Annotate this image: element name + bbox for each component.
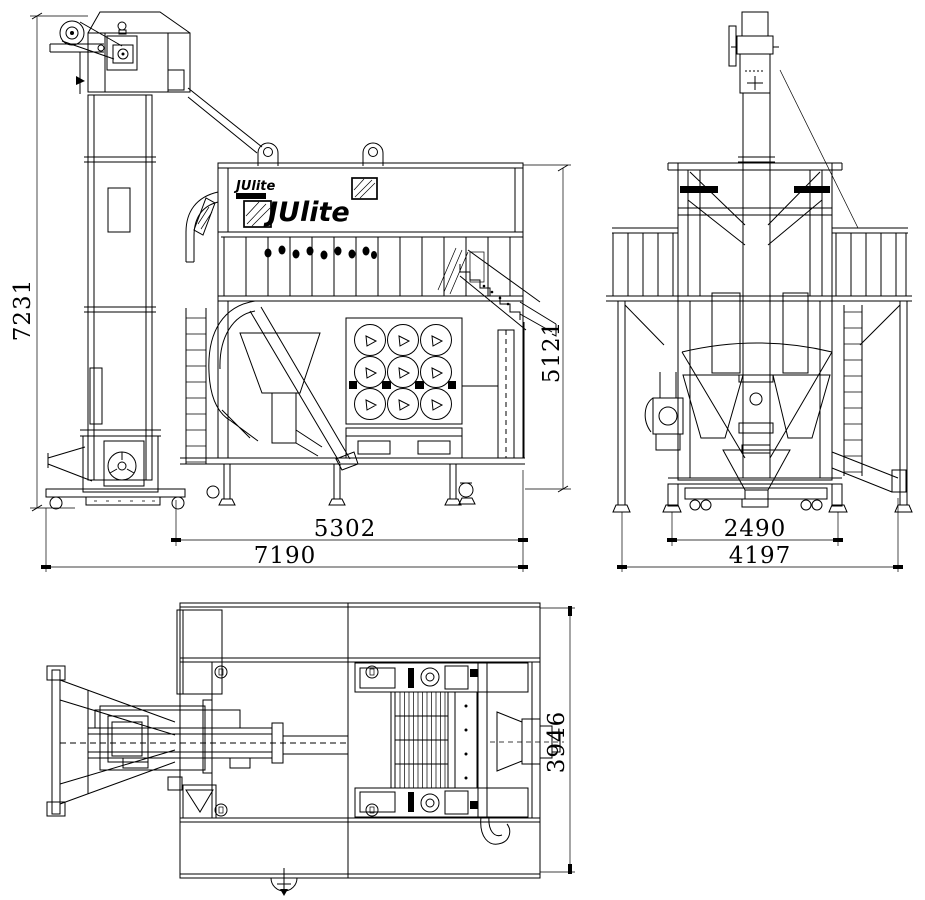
dimension-front-overall-height: 7231 — [10, 13, 88, 511]
machine-internals-front — [186, 232, 556, 470]
tow-hook — [271, 868, 297, 896]
elevator-head-side — [729, 12, 858, 228]
brand-panel: JUlite JUlite — [233, 178, 377, 228]
dim-text-7231: 7231 — [10, 279, 36, 342]
fan-grid — [346, 318, 462, 458]
dim-text-4197: 4197 — [729, 543, 792, 569]
front-view: JUlite JUlite — [10, 12, 571, 572]
screen-deck-section — [355, 663, 528, 817]
base-frame-front — [180, 458, 525, 505]
dimension-side-base-width: 2490 — [667, 512, 843, 546]
aspiration-fan-side — [645, 372, 683, 450]
dimension-plan-overall-depth: 3946 — [540, 606, 575, 874]
machine-body-side — [668, 163, 842, 480]
brand-logo-small: JUlite — [233, 179, 276, 194]
three-view-drawing: JUlite JUlite — [0, 0, 925, 900]
dim-text-5302: 5302 — [314, 516, 377, 542]
side-view: 2490 4197 — [606, 12, 912, 572]
dim-text-2490: 2490 — [724, 516, 787, 542]
bucket-elevator-front — [46, 12, 190, 509]
ladder-side — [844, 305, 862, 476]
brand-logo-large: JUlite — [263, 197, 350, 228]
discharge-spout — [188, 88, 383, 166]
dim-text-3946: 3946 — [544, 711, 570, 774]
service-platforms — [606, 228, 912, 512]
side-outlet-chute — [832, 452, 906, 492]
louver-vents — [438, 248, 484, 294]
elevator-column-side — [738, 93, 775, 478]
feed-conveyor-arm — [47, 666, 350, 816]
base-frame-side — [663, 478, 847, 512]
dim-text-7190: 7190 — [254, 543, 317, 569]
plan-outlet-duct — [481, 817, 510, 844]
plan-view: 3946 — [47, 603, 575, 896]
brand-sublabel-bar — [236, 193, 266, 199]
drawing-sheet: JUlite JUlite — [0, 0, 925, 900]
discharge-hopper-side — [723, 450, 790, 499]
dimension-front-body-width: 5302 — [171, 470, 528, 572]
dimension-front-body-height: 5121 — [523, 165, 571, 492]
dim-text-5121: 5121 — [539, 321, 565, 384]
painted-characters — [265, 246, 378, 260]
